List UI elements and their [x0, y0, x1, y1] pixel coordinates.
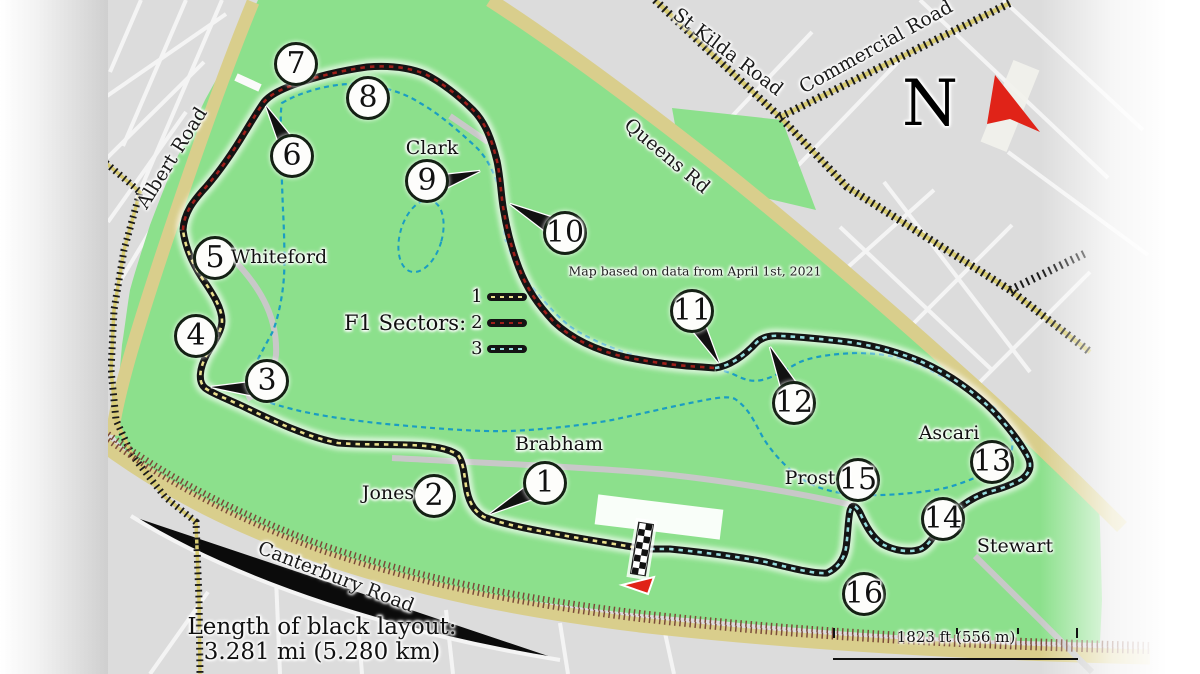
legend-sector-2-number: 2	[471, 312, 482, 333]
corner-marker-4: 4	[174, 314, 218, 358]
corner-marker-11: 11	[670, 289, 714, 333]
corner-marker-15: 15	[836, 458, 880, 502]
corner-marker-9: 9	[405, 159, 449, 203]
corner-marker-6: 6	[270, 134, 314, 178]
corner-name-whiteford: Whiteford	[231, 246, 327, 268]
corner-marker-13: 13	[970, 440, 1014, 484]
road-label-queens-rd: Queens Rd	[620, 114, 714, 198]
track-length-note: Length of black layout: 3.281 mi (5.280 …	[187, 615, 456, 665]
corner-name-ascari: Ascari	[919, 422, 980, 444]
legend-sector-3: 3	[471, 338, 527, 359]
track-length-line2: 3.281 mi (5.280 km)	[187, 640, 456, 665]
scale-bar-line	[833, 658, 1078, 660]
corner-name-prost: Prost	[785, 467, 836, 489]
road-label-albert-road: Albert Road	[132, 103, 212, 212]
legend-sector-3-swatch	[487, 345, 527, 353]
corner-name-clark: Clark	[406, 137, 459, 159]
map-data-note: Map based on data from April 1st, 2021	[569, 264, 822, 279]
legend-sector-2-swatch	[487, 319, 527, 327]
legend-sector-1-number: 1	[471, 286, 482, 307]
track-length-line1: Length of black layout:	[187, 615, 456, 640]
corner-marker-7: 7	[274, 42, 318, 86]
legend-title: F1 Sectors:	[344, 311, 466, 335]
corner-marker-14: 14	[921, 497, 965, 541]
corner-marker-3: 3	[245, 359, 289, 403]
corner-marker-8: 8	[346, 76, 390, 120]
corner-name-jones: Jones	[362, 482, 414, 504]
legend-sector-3-number: 3	[471, 338, 482, 359]
corner-marker-12: 12	[772, 381, 816, 425]
road-label-canterbury-road: Canterbury Road	[255, 537, 417, 617]
legend-sector-2: 2	[471, 312, 527, 333]
compass-north-letter: N	[902, 67, 958, 141]
road-label-st-kilda-road: St Kilda Road	[669, 4, 788, 101]
f1-sectors-legend: F1 Sectors: 1 2 3	[344, 286, 527, 359]
corner-marker-16: 16	[842, 572, 886, 616]
corner-name-stewart: Stewart	[977, 535, 1053, 557]
legend-sector-1-swatch	[487, 293, 527, 301]
corner-marker-2: 2	[412, 474, 456, 518]
legend-sector-1: 1	[471, 286, 527, 307]
corner-marker-10: 10	[543, 211, 587, 255]
circuit-map: Map based on data from April 1st, 2021 N…	[0, 0, 1200, 674]
corner-name-brabham: Brabham	[515, 433, 603, 455]
corner-marker-1: 1	[523, 461, 567, 505]
